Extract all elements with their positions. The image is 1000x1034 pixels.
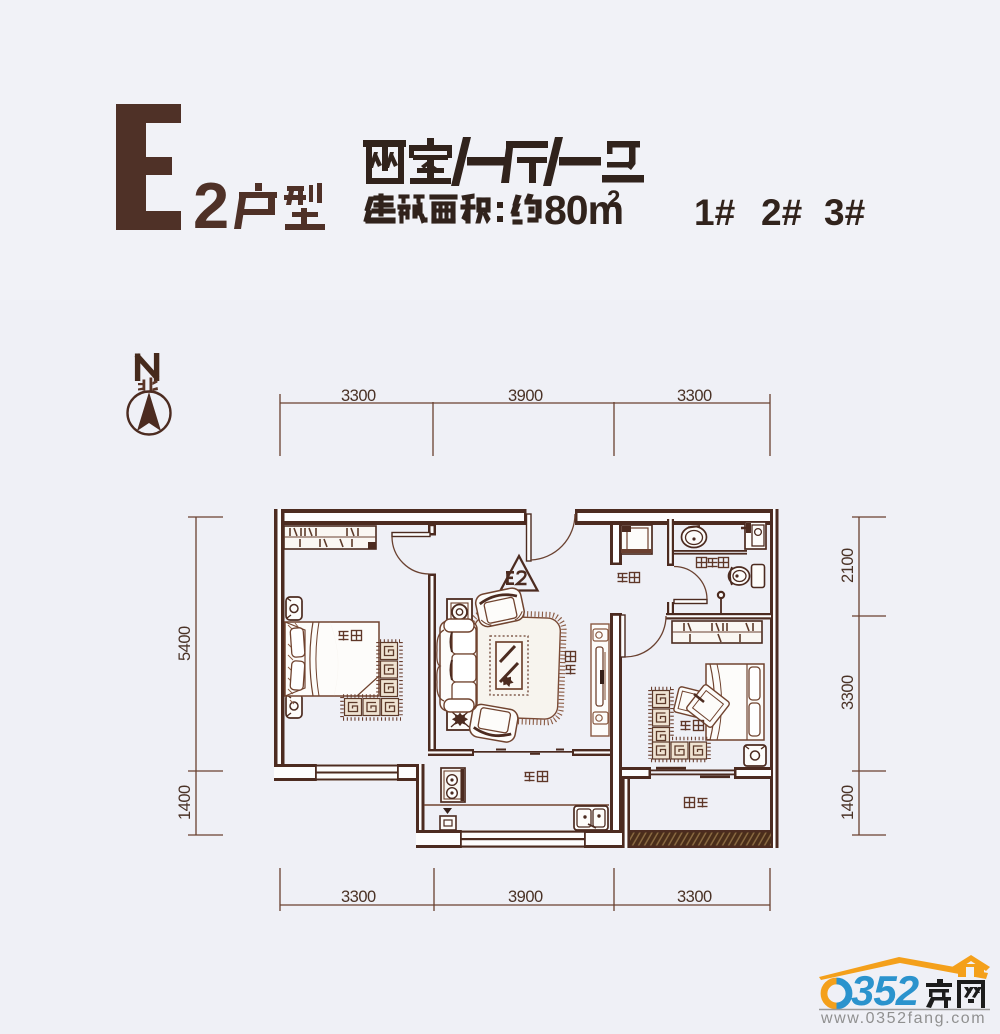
svg-text:2: 2 xyxy=(193,169,229,242)
svg-text:3300: 3300 xyxy=(341,888,376,906)
svg-text:2: 2 xyxy=(607,186,620,213)
svg-text:www.0352fang.com: www.0352fang.com xyxy=(820,1010,986,1027)
svg-text:352: 352 xyxy=(851,967,919,1014)
svg-text:1400: 1400 xyxy=(839,785,857,820)
svg-text:2#: 2# xyxy=(761,192,802,233)
svg-text:1#: 1# xyxy=(694,192,735,233)
svg-text:1400: 1400 xyxy=(176,785,194,820)
svg-text:3300: 3300 xyxy=(677,888,712,906)
svg-text:5400: 5400 xyxy=(176,626,194,661)
svg-text:3#: 3# xyxy=(824,192,865,233)
svg-text:3300: 3300 xyxy=(677,387,712,405)
svg-text:3900: 3900 xyxy=(508,387,543,405)
svg-text:2100: 2100 xyxy=(839,548,857,583)
svg-text:3300: 3300 xyxy=(341,387,376,405)
svg-text:3300: 3300 xyxy=(839,675,857,710)
svg-text:3900: 3900 xyxy=(508,888,543,906)
